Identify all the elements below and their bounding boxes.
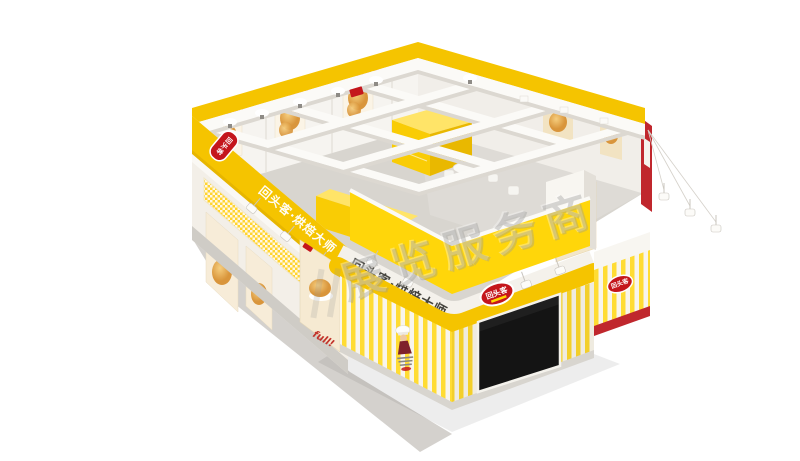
right-wall-board — [644, 138, 650, 168]
hanging-lamp-icon — [659, 183, 669, 200]
hanging-lamp-icon — [685, 199, 695, 216]
chair — [508, 186, 519, 195]
track-mount — [520, 96, 528, 102]
exhibition-booth-3d-render: 蒸面包 蒸面包 蒸面包 — [0, 0, 800, 461]
booth-render-image: 蒸面包 蒸面包 蒸面包 — [0, 0, 800, 461]
track-mount — [600, 118, 608, 124]
exterior-lamp-wires — [648, 130, 721, 232]
track-mount — [560, 107, 568, 113]
sales-counter: 回头客 — [594, 232, 650, 336]
